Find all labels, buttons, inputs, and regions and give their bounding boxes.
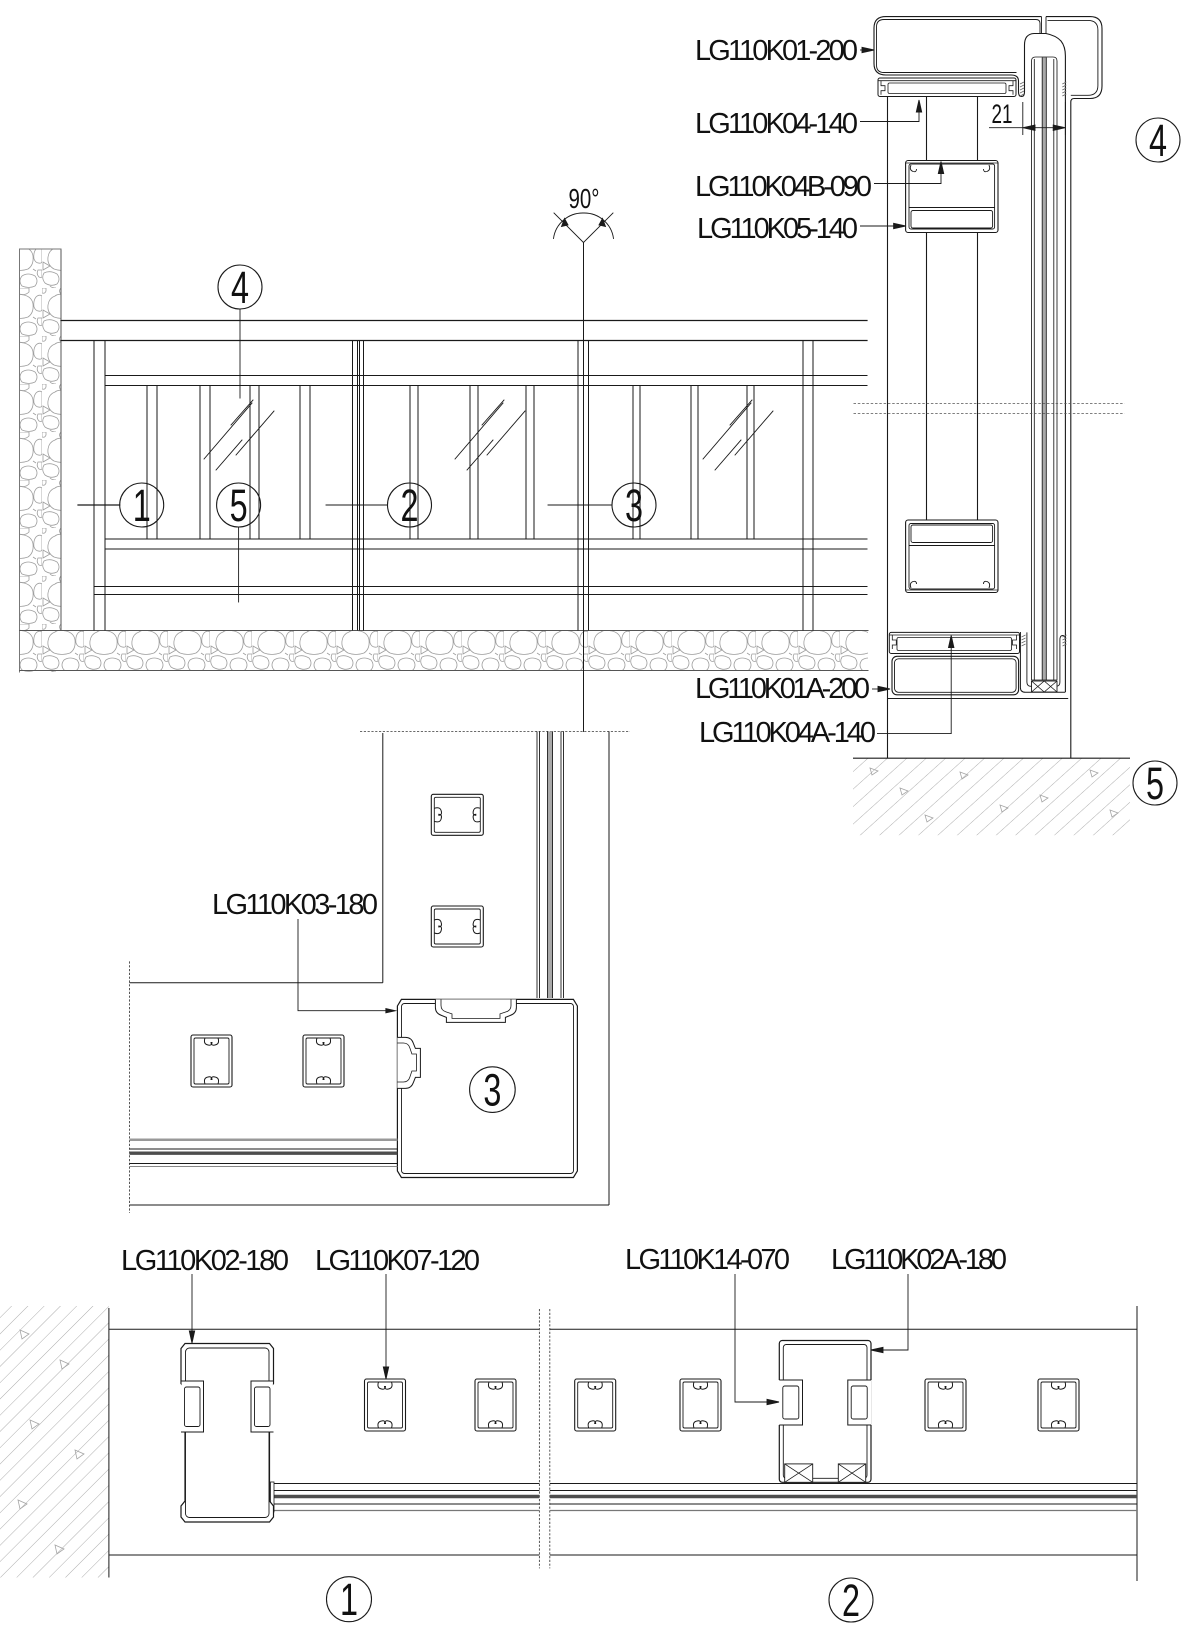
svg-text:LG110K04A-140: LG110K04A-140 [699,717,876,749]
svg-text:5: 5 [1146,758,1164,809]
svg-text:LG110K02A-180: LG110K02A-180 [831,1244,1007,1276]
svg-text:LG110K04-140: LG110K04-140 [695,108,858,140]
svg-text:4: 4 [1149,115,1167,166]
svg-text:5: 5 [230,480,248,531]
svg-text:1: 1 [340,1574,358,1625]
svg-text:21: 21 [992,99,1013,129]
svg-text:3: 3 [483,1065,501,1116]
svg-text:2: 2 [842,1575,860,1626]
svg-text:LG110K14-070: LG110K14-070 [625,1244,790,1276]
svg-text:LG110K03-180: LG110K03-180 [212,889,378,921]
svg-text:LG110K01A-200: LG110K01A-200 [695,673,870,705]
svg-text:LG110K02-180: LG110K02-180 [121,1245,289,1277]
svg-text:4: 4 [231,262,249,313]
svg-text:1: 1 [133,480,151,531]
svg-text:90°: 90° [569,183,600,214]
svg-text:LG110K04B-090: LG110K04B-090 [695,171,872,203]
svg-text:2: 2 [401,480,419,531]
svg-text:LG110K05-140: LG110K05-140 [697,213,858,245]
svg-text:3: 3 [625,480,643,531]
svg-text:LG110K07-120: LG110K07-120 [315,1245,480,1277]
svg-text:LG110K01-200: LG110K01-200 [695,35,858,67]
